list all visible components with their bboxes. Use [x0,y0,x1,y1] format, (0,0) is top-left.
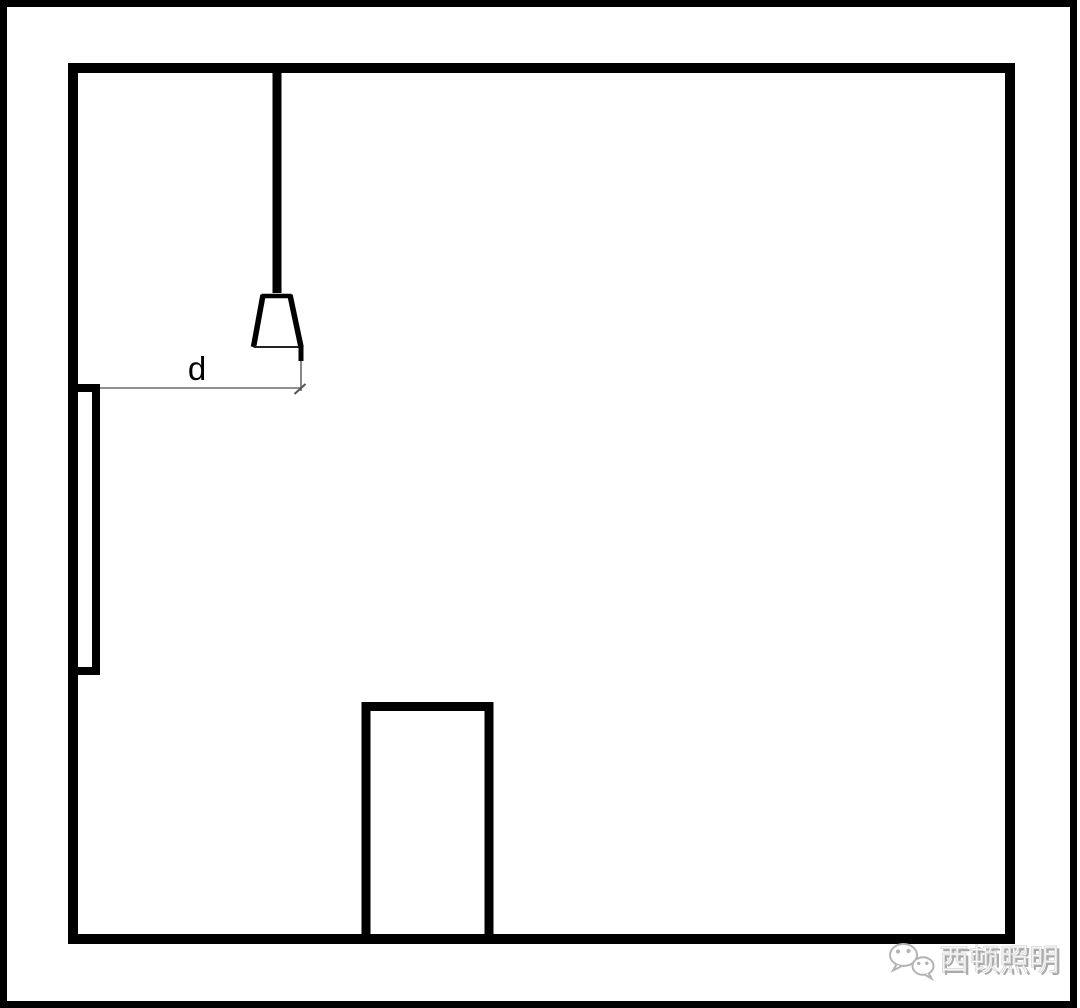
dimension-label: d [188,350,206,387]
pendant-shade-left-side [254,295,264,347]
watermark-text: 西顿照明 [939,943,1059,978]
wechat-big-eye-left [896,949,900,953]
room-elevation-diagram: d [0,0,1080,1008]
diagram-canvas: d [0,0,1080,1008]
wechat-small-bubble [913,957,934,975]
pendant-lamp [254,71,302,361]
wechat-big-eye-right [906,949,910,953]
wechat-small-eye-left [917,962,920,965]
dimension: d [79,350,306,394]
dimension-tick-slash [295,384,306,394]
room-outline [73,68,1010,939]
wechat-icon [890,944,934,979]
cabinet [366,707,489,944]
outer-frame [4,4,1074,1005]
pendant-shade-right-side [290,295,301,347]
watermark: 西顿照明 西顿照明 [890,943,1062,981]
wall-mirror [74,388,96,671]
wechat-small-eye-right [925,962,928,965]
